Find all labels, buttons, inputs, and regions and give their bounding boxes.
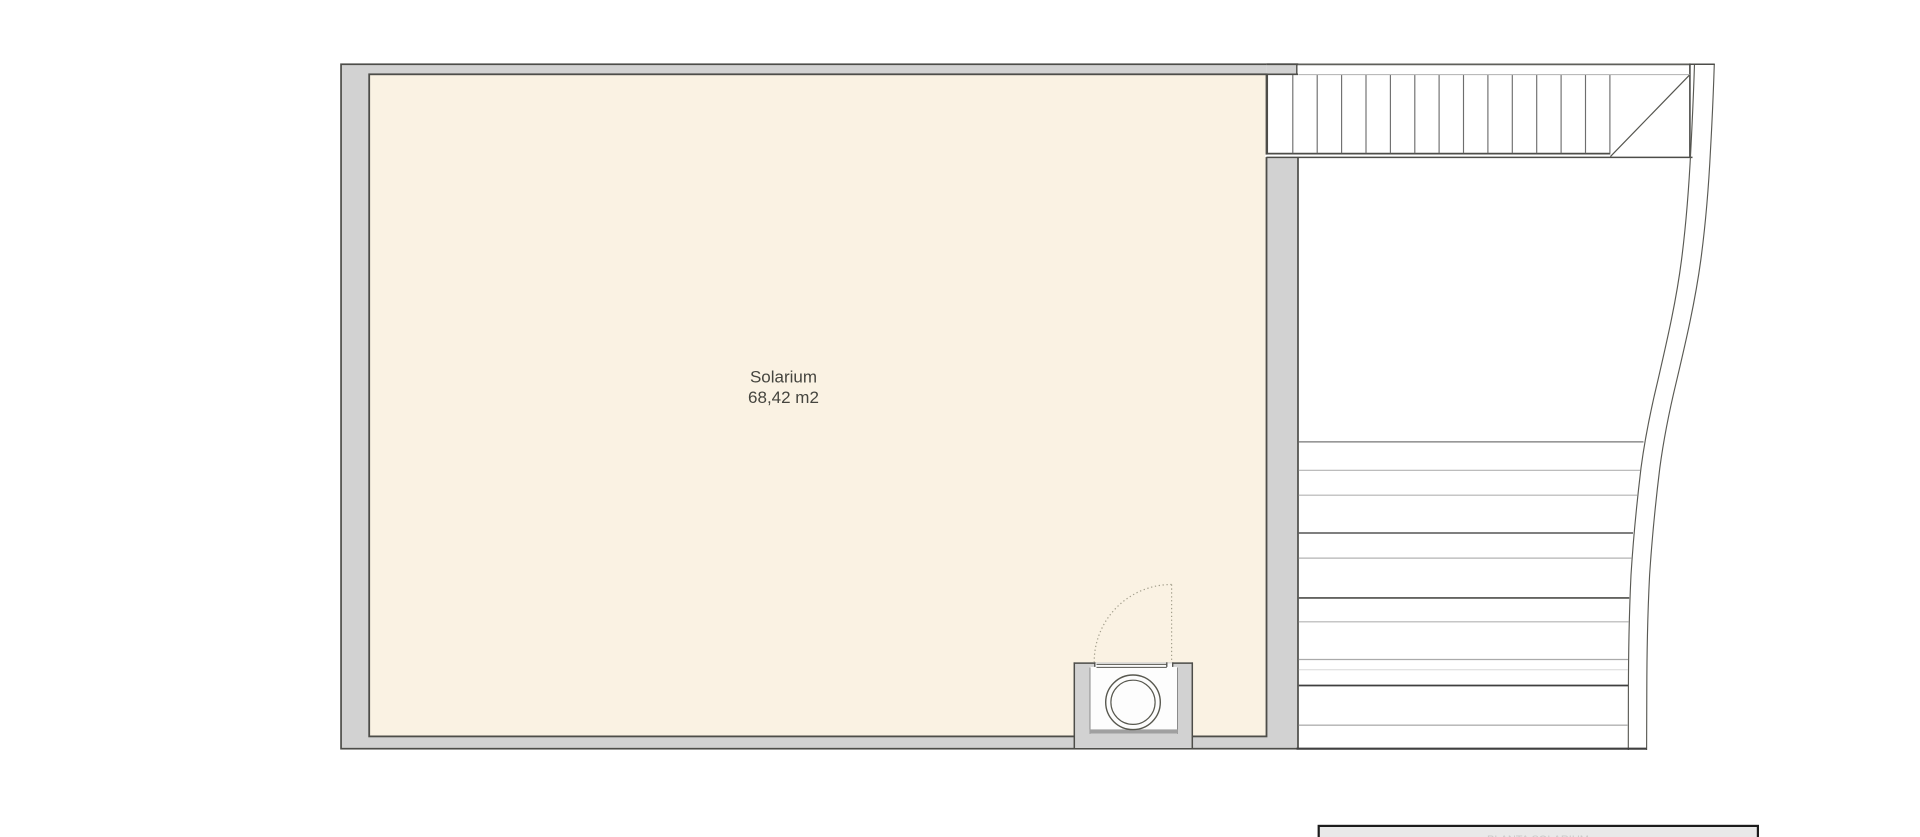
svg-text:Solarium: Solarium bbox=[750, 367, 817, 386]
svg-text:68,42 m2: 68,42 m2 bbox=[748, 388, 819, 407]
